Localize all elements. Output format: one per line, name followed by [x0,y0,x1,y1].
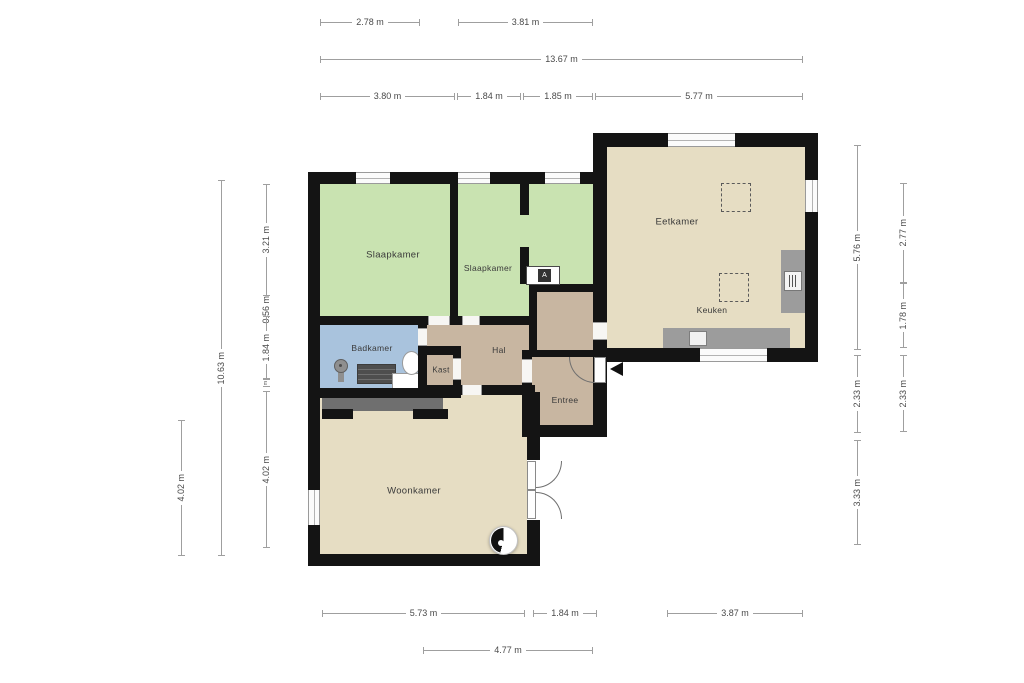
dimension-left: m [260,379,272,391]
north-arrow-dot [498,540,504,546]
wall [322,409,353,419]
dimension-right: 1.78 m [897,283,909,348]
dim-label: 1.84 m [547,609,583,618]
wall [418,316,427,328]
dimension-left: 1.84 m [260,316,272,379]
dim-label: 3.81 m [508,18,544,27]
french-door-arc-top [536,461,562,488]
window [805,180,818,212]
dimension-bottom: 5.73 m [322,607,525,619]
dim-label: 5.77 m [681,92,717,101]
dimension-bottom: 4.77 m [423,644,593,656]
dim-label: 1.78 m [899,302,908,330]
wall [593,340,607,437]
dimension-top: 3.80 m [320,90,455,102]
door-opening-slaapkamer-1 [428,316,450,325]
door-opening-slaapkamer-2 [462,316,480,325]
entrance-arrow-icon [610,362,623,376]
door-opening-eetkamer [593,322,607,340]
dim-label: 13.67 m [541,55,582,64]
dimension-top: 3.81 m [458,16,593,28]
label-hal: Hal [492,345,506,355]
window [458,172,490,184]
dimension-top: 1.84 m [457,90,521,102]
wall [482,385,535,395]
wall [593,133,607,322]
dimension-right: 5.76 m [851,145,863,350]
dim-label: 5.76 m [853,234,862,262]
dim-label: 2.33 m [899,380,908,408]
wall [308,554,540,566]
window [700,348,767,362]
dim-label: 2.33 m [853,380,862,408]
label-badkamer: Badkamer [351,343,392,353]
wall [413,409,448,419]
window [545,172,580,184]
label-eetkamer: Eetkamer [655,217,698,228]
dim-label: 3.21 m [262,226,271,254]
label-slaapkamer-1: Slaapkamer [366,250,420,261]
skylight-icon [719,273,749,302]
label-slaapkamer-2: Slaapkamer [464,263,512,273]
dim-label: 3.33 m [853,479,862,507]
dimension-bottom: 3.87 m [667,607,803,619]
label-kast: Kast [432,366,449,375]
french-door-leaf-bottom [527,490,536,519]
wall [320,316,428,325]
door-opening-woonkamer [462,385,482,395]
dim-label: 4.02 m [262,456,271,484]
shower-icon [334,359,348,373]
dim-label: 4.77 m [490,646,526,655]
window [668,133,735,147]
dim-label: 4.02 m [177,474,186,502]
dimension-left: 3.21 m [260,184,272,296]
wall [480,316,535,325]
dim-label: 3.87 m [717,609,753,618]
dimension-top: 13.67 m [320,53,803,65]
wall [520,184,529,215]
door-opening-kast [453,358,461,380]
dimension-top: 1.85 m [523,90,593,102]
sink-icon [689,331,707,346]
dim-label: 1.84 m [471,92,507,101]
dim-label: 10.63 m [217,352,226,385]
window [356,172,390,184]
wall [453,380,461,389]
dimension-left: 10.63 m [215,180,227,556]
hob-icon [784,271,802,291]
dimension-left: 4.02 m [260,391,272,548]
label-entree: Entree [552,395,579,405]
floor-hal-main [418,322,535,388]
boiler-icon: A [538,269,551,282]
dim-label: 1.84 m [262,334,271,362]
dim-label: 3.80 m [370,92,406,101]
dimension-bottom: 1.84 m [533,607,597,619]
dimension-left: 4.02 m [175,420,187,556]
floorplan-canvas: A Slaapkamer Slaapkamer Badkamer Kast Ha… [0,0,1024,683]
front-door-leaf [594,357,606,383]
dimension-right: 2.33 m [851,355,863,433]
wall [450,184,458,316]
label-keuken: Keuken [697,305,728,315]
french-door-leaf-top [527,461,536,490]
vanity-icon [357,364,396,384]
kitchen-counter-bottom [663,328,790,348]
door-opening-hal-entree [522,359,532,383]
dim-label: 1.85 m [540,92,576,101]
floor-hal-arm [529,284,593,357]
floor-eetkamer [607,147,805,350]
dimension-right: 3.33 m [851,440,863,545]
wall [308,388,461,398]
dim-label: 5.73 m [406,609,442,618]
dimension-top: 5.77 m [595,90,803,102]
wall [805,133,818,362]
north-arrow-icon [489,526,518,555]
wall [529,284,537,357]
window [308,490,320,525]
wall [522,350,532,359]
dimension-right: 2.77 m [897,183,909,283]
dimension-right: 2.33 m [897,355,909,432]
wall [522,425,607,437]
dimension-top: 2.78 m [320,16,420,28]
wall [450,316,462,325]
skylight-icon [721,183,751,212]
dim-label: 2.77 m [899,219,908,247]
wall [453,346,461,358]
french-door-arc-bottom [536,492,562,519]
door-opening-badkamer [418,328,427,346]
dim-label: 2.78 m [352,18,388,27]
dim-label: m [264,381,269,385]
label-woonkamer: Woonkamer [387,486,441,497]
shower-stem-icon [338,372,344,382]
dimension-left: 0.56 m [260,296,272,316]
